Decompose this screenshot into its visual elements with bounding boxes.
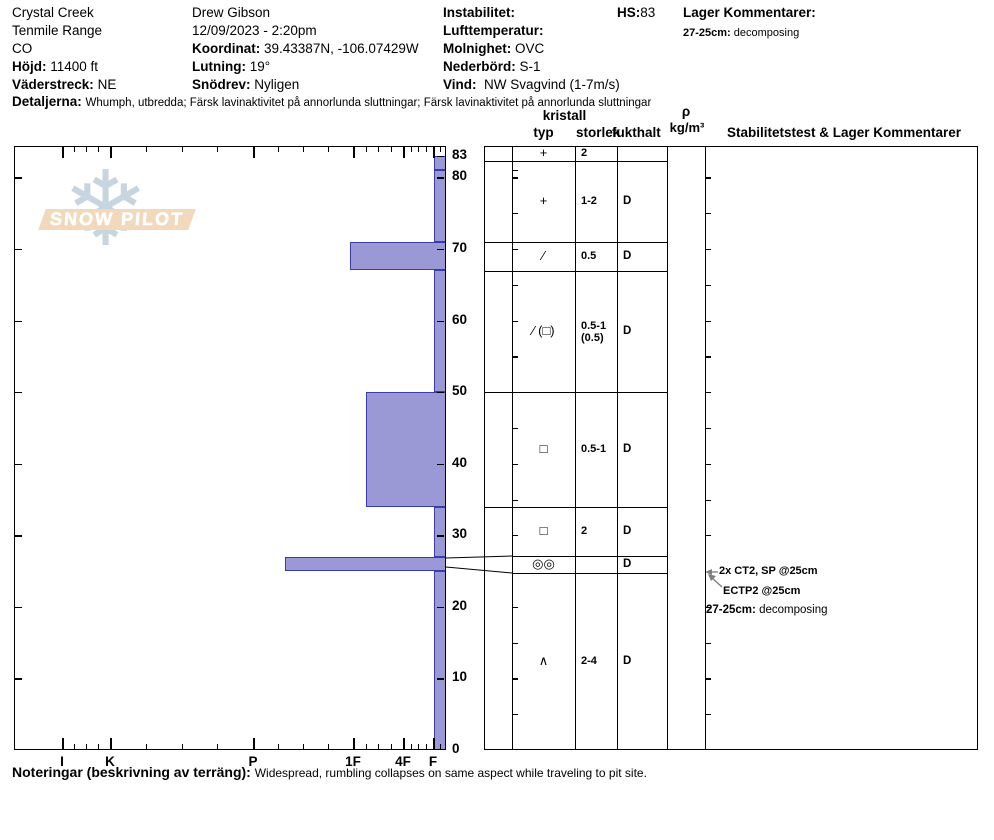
moisture-cell: D — [623, 558, 631, 570]
depth-tick — [15, 392, 22, 393]
layer-comments-title: Lager Kommentarer: — [683, 4, 816, 22]
density-header: ρ — [667, 104, 705, 119]
fukthalt-header: fukthalt — [612, 125, 661, 140]
hardness-minor-tick — [418, 744, 419, 749]
stability-depth-tick — [706, 535, 711, 536]
hardness-minor-tick — [74, 147, 75, 152]
depth-tick — [437, 321, 444, 322]
depth-tick — [437, 535, 444, 536]
observer-name: Drew Gibson — [192, 4, 419, 22]
range-name: Tenmile Range — [12, 22, 116, 40]
stability-depth-tick — [706, 678, 711, 679]
table-column-line — [705, 146, 706, 750]
hardness-minor-tick — [146, 744, 147, 749]
depth-tick — [15, 607, 22, 608]
hardness-minor-tick — [182, 147, 183, 152]
table-depth-tick — [513, 285, 518, 286]
hardness-minor-tick — [411, 147, 412, 152]
table-depth-tick — [513, 464, 518, 465]
depth-tick — [437, 156, 444, 157]
site-name: Crystal Creek — [12, 4, 116, 22]
table-row-line — [512, 573, 667, 574]
moisture-cell: D — [623, 655, 631, 667]
depth-label: 80 — [452, 168, 467, 183]
grain-size-cell: 0.5-1 — [581, 443, 606, 455]
elevation-line: Höjd: 11400 ft — [12, 58, 116, 76]
chart-frame — [14, 146, 446, 750]
state-name: CO — [12, 40, 116, 58]
hs-value: 83 — [640, 5, 655, 20]
table-row-line — [484, 242, 667, 243]
table-column-line — [575, 146, 576, 750]
depth-tick — [437, 678, 444, 679]
table-row-line — [484, 161, 667, 162]
depth-label: 40 — [452, 455, 467, 470]
table-row-line — [484, 392, 667, 393]
hardness-tick — [110, 147, 112, 158]
hardness-minor-tick — [378, 147, 379, 152]
depth-label: 60 — [452, 312, 467, 327]
hardness-label: K — [98, 754, 122, 769]
grain-type-cell: ∧ — [513, 653, 574, 669]
density-unit: kg/m³ — [667, 120, 707, 135]
grain-size-cell: 2 — [581, 147, 587, 159]
grain-type-cell: ∕ — [513, 248, 574, 263]
coordinates-line: Koordinat: 39.43387N, -106.07429W — [192, 40, 419, 58]
moisture-cell: D — [623, 195, 631, 207]
snowdrift-line: Snödrev: Nyligen — [192, 76, 419, 94]
depth-label: 30 — [452, 526, 467, 541]
depth-tick — [437, 177, 444, 178]
stability-depth-tick — [706, 249, 711, 250]
hardness-minor-tick — [217, 744, 218, 749]
stability-depth-tick — [706, 285, 711, 286]
kristall-header: kristall — [512, 108, 617, 123]
hardness-minor-tick — [98, 744, 99, 749]
hardness-tick — [433, 147, 435, 158]
depth-tick — [15, 678, 22, 679]
hardness-tick — [62, 738, 64, 749]
aspect-line: Väderstreck: NE — [12, 76, 116, 94]
table-row-line — [484, 507, 667, 508]
stability-depth-tick — [706, 213, 711, 214]
table-depth-tick — [513, 678, 518, 679]
hardness-tick — [403, 738, 405, 749]
depth-tick — [15, 249, 22, 250]
wind-line: Vind: NW Svagvind (1-7m/s) — [443, 76, 620, 94]
stability-depth-tick — [706, 714, 711, 715]
hardness-tick — [403, 147, 405, 158]
depth-tick — [15, 535, 22, 536]
table-depth-tick — [513, 170, 518, 171]
table-depth-tick — [513, 714, 518, 715]
stability-depth-tick — [706, 321, 711, 322]
hardness-minor-tick — [391, 744, 392, 749]
table-depth-tick — [513, 500, 518, 501]
depth-label: 0 — [452, 741, 460, 756]
grain-type-cell: □ — [513, 523, 574, 538]
hardness-tick — [433, 738, 435, 749]
table-depth-tick — [513, 213, 518, 214]
header-conditions-block: Instabilitet: Lufttemperatur: Molnighet:… — [443, 4, 620, 94]
stability-depth-tick — [706, 500, 711, 501]
header-location-block: Crystal Creek Tenmile Range CO Höjd: 114… — [12, 4, 116, 94]
depth-tick — [15, 464, 22, 465]
table-column-line — [667, 146, 668, 750]
snowpilot-profile-page: Crystal Creek Tenmile Range CO Höjd: 114… — [0, 0, 994, 840]
hardness-minor-tick — [426, 147, 427, 152]
hs-block: HS:83 — [617, 4, 655, 22]
table-depth-tick — [513, 356, 518, 357]
hardness-label: F — [421, 754, 445, 769]
hardness-minor-tick — [303, 744, 304, 749]
depth-tick — [437, 392, 444, 393]
header-observer-block: Drew Gibson 12/09/2023 - 2:20pm Koordina… — [192, 4, 419, 94]
stability-depth-tick — [706, 643, 711, 644]
hardness-tick — [253, 738, 255, 749]
layer-comment-line: 27-25cm: decomposing — [683, 24, 816, 42]
grain-size-cell: 0.5 — [581, 250, 596, 262]
table-depth-tick — [513, 428, 518, 429]
stability-depth-tick — [706, 356, 711, 357]
grain-type-cell: + — [513, 145, 574, 160]
layer-comments-block: Lager Kommentarer: 27-25cm: decomposing — [683, 4, 816, 42]
table-depth-tick — [513, 643, 518, 644]
moisture-cell: D — [623, 443, 631, 455]
hardness-label: 4F — [391, 754, 415, 769]
hardness-label: P — [241, 754, 265, 769]
hardness-minor-tick — [440, 744, 441, 749]
hardness-minor-tick — [86, 744, 87, 749]
depth-label: 83 — [452, 147, 467, 162]
hardness-minor-tick — [146, 147, 147, 152]
hardness-minor-tick — [411, 744, 412, 749]
hardness-minor-tick — [278, 744, 279, 749]
hardness-tick — [110, 738, 112, 749]
stability-depth-tick — [706, 177, 711, 178]
hardness-tick — [62, 147, 64, 158]
grain-type-cell: ◎◎ — [513, 556, 574, 572]
airtemp-line: Lufttemperatur: — [443, 22, 620, 40]
depth-tick — [437, 607, 444, 608]
hardness-minor-tick — [440, 147, 441, 152]
stability-depth-tick — [706, 464, 711, 465]
grain-size-cell: 0.5-1 (0.5) — [581, 320, 606, 344]
hardness-minor-tick — [278, 147, 279, 152]
typ-header: typ — [512, 125, 575, 140]
grain-size-cell: 2-4 — [581, 655, 597, 667]
moisture-cell: D — [623, 250, 631, 262]
hardness-minor-tick — [366, 147, 367, 152]
hardness-minor-tick — [303, 147, 304, 152]
grain-size-cell: 2 — [581, 525, 587, 537]
table-depth-tick — [513, 607, 518, 608]
slope-line: Lutning: 19° — [192, 58, 419, 76]
hardness-minor-tick — [328, 147, 329, 152]
table-row-line — [484, 271, 667, 272]
grain-type-cell: □ — [513, 441, 574, 456]
moisture-cell: D — [623, 525, 631, 537]
grain-size-cell: 1-2 — [581, 195, 597, 207]
depth-tick — [15, 177, 22, 178]
precip-line: Nederbörd: S-1 — [443, 58, 620, 76]
observation-datetime: 12/09/2023 - 2:20pm — [192, 22, 419, 40]
depth-label: 50 — [452, 383, 467, 398]
hardness-tick — [353, 738, 355, 749]
table-depth-tick — [513, 177, 518, 178]
depth-tick — [437, 249, 444, 250]
stability-header: Stabilitetstest & Lager Kommentarer — [727, 125, 961, 140]
hardness-minor-tick — [217, 147, 218, 152]
stability-depth-tick — [706, 392, 711, 393]
hardness-minor-tick — [378, 744, 379, 749]
hardness-minor-tick — [418, 147, 419, 152]
depth-tick — [437, 464, 444, 465]
grain-type-cell: ∕ (□) — [513, 323, 574, 338]
grain-type-cell: + — [513, 193, 574, 208]
sky-line: Molnighet: OVC — [443, 40, 620, 58]
hardness-minor-tick — [182, 744, 183, 749]
depth-tick — [15, 321, 22, 322]
table-column-line — [617, 146, 618, 750]
details-line: Detaljerna: Whumph, utbredda; Färsk lavi… — [12, 94, 651, 109]
moisture-cell: D — [623, 325, 631, 337]
hardness-label: 1F — [341, 754, 365, 769]
hardness-label: I — [50, 754, 74, 769]
depth-label: 10 — [452, 669, 467, 684]
stability-depth-tick — [706, 428, 711, 429]
instability-line: Instabilitet: — [443, 4, 620, 22]
hardness-tick — [253, 147, 255, 158]
depth-label: 20 — [452, 598, 467, 613]
hardness-minor-tick — [366, 744, 367, 749]
hardness-minor-tick — [74, 744, 75, 749]
hardness-minor-tick — [98, 147, 99, 152]
hardness-minor-tick — [86, 147, 87, 152]
hardness-tick — [353, 147, 355, 158]
hardness-minor-tick — [391, 147, 392, 152]
stability-depth-tick — [706, 607, 711, 608]
hardness-minor-tick — [328, 744, 329, 749]
hardness-minor-tick — [426, 744, 427, 749]
depth-label: 70 — [452, 240, 467, 255]
